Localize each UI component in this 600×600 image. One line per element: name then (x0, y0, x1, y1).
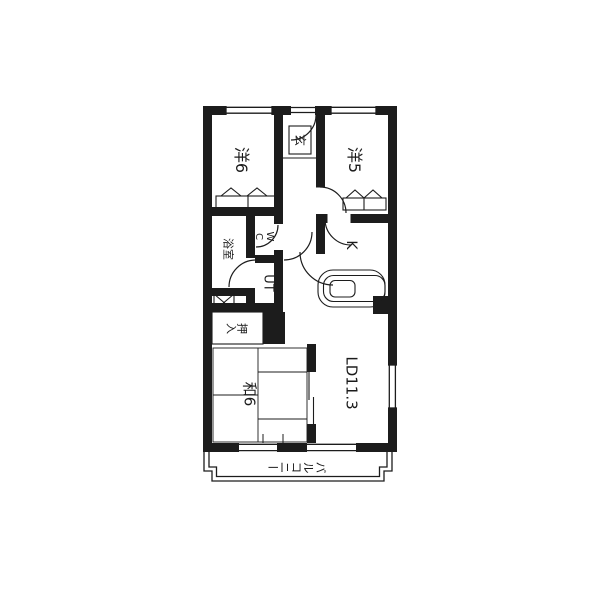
door-swing-arc-bath (229, 260, 256, 287)
kitchen-counter (318, 270, 385, 307)
wall-segment (388, 106, 397, 365)
wall-segment (263, 312, 285, 344)
wall-segment (307, 424, 316, 443)
closet-marker-icon (221, 188, 241, 196)
wall-segment (272, 106, 291, 115)
closet-marker-icon (346, 190, 364, 198)
door-arcs (229, 115, 351, 287)
wall-segment (373, 296, 388, 314)
room-label-closet: 押入 (226, 323, 248, 334)
wall-segment (277, 443, 307, 452)
wall-segment (203, 288, 246, 296)
room-label-utility: UT (262, 274, 275, 291)
entry-door-opening (291, 108, 315, 113)
window-balcony-left (239, 444, 277, 450)
door-swing-arc-ld (300, 252, 333, 285)
wall-segment (274, 216, 283, 224)
door-swing-arc-hall (284, 232, 312, 260)
room-label-japanese-room-6: 和6 (242, 382, 257, 407)
closet-yo6 (216, 188, 279, 208)
window-top-right (331, 106, 376, 115)
room-label-wc: WC (253, 231, 275, 241)
kitchen-sink (330, 281, 355, 298)
wall-segment (316, 223, 325, 254)
room-label-kitchen: K (344, 240, 358, 249)
door-swing-arc-yo5 (320, 187, 346, 213)
wall-segment (316, 115, 325, 187)
wall-segment (255, 255, 274, 263)
closet-yo5 (343, 190, 386, 210)
floorplan-image: 洋6 玄 洋5 浴室 WC UT K 押入 和6 LD11.3 バルコニー (0, 0, 600, 600)
wall-segment (315, 106, 331, 115)
room-label-bathroom: 浴室 (223, 238, 234, 260)
wall-segment (203, 106, 212, 452)
room-label-western-room-5: 洋5 (346, 147, 362, 173)
room-label-western-room-6: 洋6 (233, 147, 249, 173)
closet-marker-icon (247, 188, 267, 196)
window-top-left (226, 106, 272, 115)
wall-segment (356, 443, 397, 452)
closet-marker-icon (364, 190, 382, 198)
room-label-balcony: バルコニー (267, 461, 327, 473)
room-label-entrance: 玄 (294, 134, 306, 146)
room-label-living-dining: LD11.3 (344, 356, 359, 409)
wall-segment (203, 443, 239, 452)
fusuma-door (309, 372, 314, 424)
wall-segment (351, 214, 397, 223)
tatami-grid (213, 348, 307, 442)
wall-segment (307, 344, 316, 372)
floorplan-canvas (0, 0, 600, 600)
window-balcony-right (307, 444, 356, 450)
window-right-ld (388, 365, 397, 408)
